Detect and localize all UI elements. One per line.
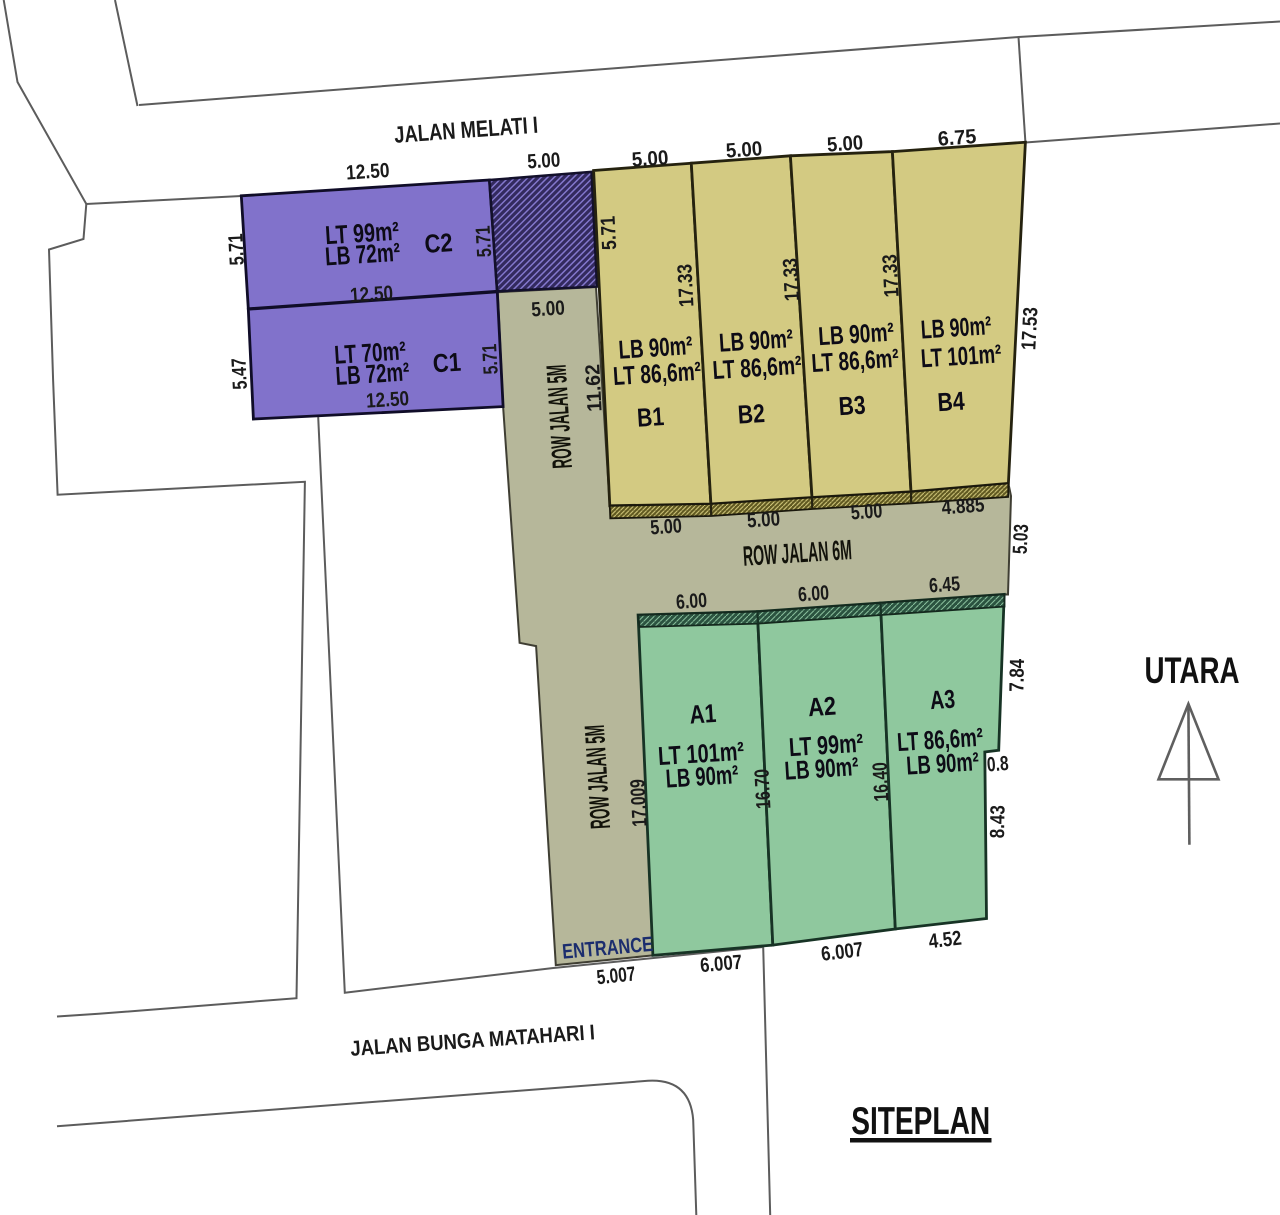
- svg-text:5.00: 5.00: [531, 296, 566, 321]
- svg-text:A1: A1: [689, 698, 718, 730]
- svg-text:4.885: 4.885: [941, 493, 985, 519]
- svg-text:LB 90m²: LB 90m²: [665, 759, 740, 794]
- svg-text:5.47: 5.47: [227, 357, 252, 390]
- svg-text:5.71: 5.71: [472, 225, 497, 258]
- svg-text:12.50: 12.50: [345, 159, 390, 185]
- svg-text:5.71: 5.71: [478, 343, 503, 375]
- svg-text:LB 90m²: LB 90m²: [905, 746, 980, 781]
- svg-text:C2: C2: [424, 227, 454, 259]
- svg-text:B1: B1: [636, 401, 665, 433]
- svg-text:0.8: 0.8: [986, 752, 1009, 776]
- svg-text:5.00: 5.00: [850, 499, 883, 524]
- svg-text:ROW JALAN 5M: ROW JALAN 5M: [541, 364, 578, 470]
- svg-text:LB 72m²: LB 72m²: [335, 356, 411, 391]
- svg-text:LT 86,6m²: LT 86,6m²: [810, 343, 899, 378]
- svg-text:17.33: 17.33: [878, 254, 903, 298]
- svg-text:6.00: 6.00: [797, 581, 830, 606]
- svg-text:17.53: 17.53: [1017, 306, 1042, 350]
- svg-text:12.50: 12.50: [365, 387, 409, 413]
- svg-text:SITEPLAN: SITEPLAN: [851, 1100, 990, 1143]
- svg-text:17.009: 17.009: [626, 779, 651, 828]
- svg-text:B3: B3: [838, 390, 867, 422]
- svg-text:A2: A2: [807, 691, 837, 723]
- svg-text:LT 101m²: LT 101m²: [920, 338, 1003, 373]
- svg-text:6.00: 6.00: [675, 589, 708, 614]
- svg-text:A3: A3: [929, 684, 956, 716]
- svg-text:7.84: 7.84: [1005, 658, 1029, 692]
- svg-text:11.62: 11.62: [581, 364, 606, 413]
- svg-text:5.00: 5.00: [826, 131, 864, 156]
- svg-text:5.007: 5.007: [595, 962, 636, 989]
- svg-text:B4: B4: [937, 386, 966, 418]
- svg-text:LB 72m²: LB 72m²: [324, 237, 401, 272]
- svg-text:4.52: 4.52: [927, 927, 962, 954]
- svg-text:5.00: 5.00: [527, 148, 561, 173]
- svg-text:5.00: 5.00: [649, 514, 682, 539]
- svg-text:LT 86,6m²: LT 86,6m²: [612, 356, 702, 391]
- svg-text:16.40: 16.40: [868, 762, 893, 803]
- svg-text:5.00: 5.00: [746, 507, 781, 532]
- svg-text:6.75: 6.75: [937, 125, 977, 151]
- svg-text:8.43: 8.43: [986, 805, 1010, 838]
- svg-text:17.33: 17.33: [779, 258, 804, 302]
- svg-text:12.50: 12.50: [349, 282, 393, 308]
- svg-text:5.71: 5.71: [597, 215, 622, 250]
- svg-text:5.71: 5.71: [224, 233, 249, 266]
- svg-text:16.70: 16.70: [750, 768, 775, 809]
- svg-text:17.33: 17.33: [673, 263, 698, 307]
- svg-text:6.45: 6.45: [928, 572, 961, 597]
- svg-text:ROW JALAN 6M: ROW JALAN 6M: [742, 534, 853, 572]
- svg-text:5.00: 5.00: [631, 146, 669, 172]
- svg-text:6.007: 6.007: [699, 951, 743, 978]
- svg-text:5.00: 5.00: [725, 137, 763, 162]
- svg-text:ROW JALAN 5M: ROW JALAN 5M: [579, 724, 616, 830]
- svg-text:B2: B2: [737, 398, 766, 430]
- svg-text:C1: C1: [432, 347, 462, 379]
- svg-text:LT 86,6m²: LT 86,6m²: [712, 350, 803, 386]
- svg-text:LB 90m²: LB 90m²: [784, 751, 860, 786]
- svg-text:UTARA: UTARA: [1145, 649, 1240, 691]
- svg-text:5.03: 5.03: [1009, 523, 1034, 554]
